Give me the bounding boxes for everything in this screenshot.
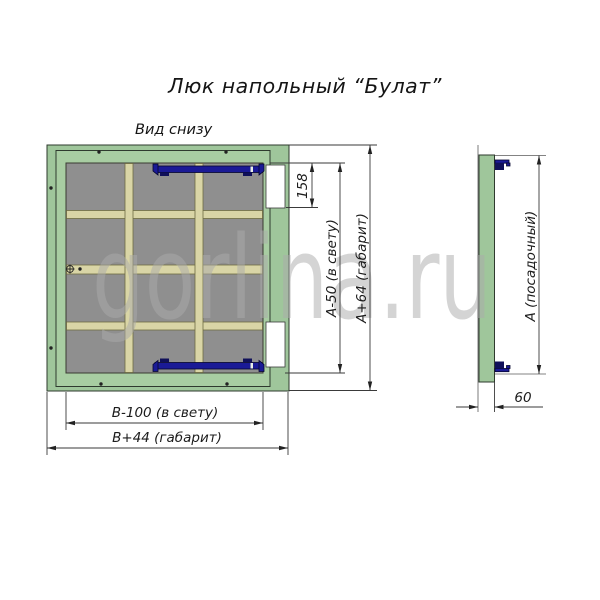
latch-gap: [251, 363, 254, 369]
latch-bar: [155, 166, 262, 173]
screw-dot: [78, 267, 81, 270]
latch-foot: [160, 173, 169, 177]
drawing-title: Люк напольный “Булат”: [167, 74, 442, 98]
dimension-b100: В-100 (в свету): [66, 405, 263, 425]
latch-bar: [155, 363, 262, 370]
latch-foot: [243, 359, 252, 363]
watermark: gorlina.ru: [92, 212, 492, 346]
clip-bottom: [495, 362, 510, 372]
latch-gap: [251, 167, 254, 173]
drawing-page: gorlina.ru 158 А-50 (в свету): [0, 0, 600, 600]
hinge-cutout-top: [266, 165, 285, 208]
dimension-a64: А+64 (габарит): [354, 145, 372, 391]
dimension-158: 158: [295, 163, 314, 208]
dim-label-height-clear: А-50 (в свету): [324, 219, 340, 318]
dim-label-width-clear: В-100 (в свету): [112, 405, 219, 421]
screw-dot: [49, 186, 52, 189]
latch-foot: [160, 359, 169, 363]
screw-dot: [99, 382, 102, 385]
screw-dot: [97, 150, 100, 153]
dim-label-seat: А (посадочный): [523, 211, 539, 323]
clip-flange: [495, 369, 509, 372]
screw-dot: [49, 346, 52, 349]
clip-tick: [507, 163, 511, 166]
clip-body: [495, 362, 504, 369]
clip-tick: [507, 366, 511, 369]
dimension-60: 60: [456, 390, 543, 409]
dimension-a-seat: А (посадочный): [523, 156, 541, 375]
technical-drawing: gorlina.ru 158 А-50 (в свету): [0, 0, 600, 600]
dim-label-width-overall: В+44 (габарит): [112, 430, 222, 446]
screw-dot: [224, 150, 227, 153]
clip-top: [495, 160, 510, 170]
dim-label-depth: 60: [514, 390, 531, 406]
view-label: Вид снизу: [135, 122, 213, 138]
screw-dot: [225, 382, 228, 385]
dimension-b44: В+44 (габарит): [47, 430, 288, 450]
clip-body: [495, 163, 504, 170]
latch-foot: [243, 173, 252, 177]
dim-label-height-overall: А+64 (габарит): [354, 213, 370, 324]
dim-label-158: 158: [295, 173, 311, 199]
